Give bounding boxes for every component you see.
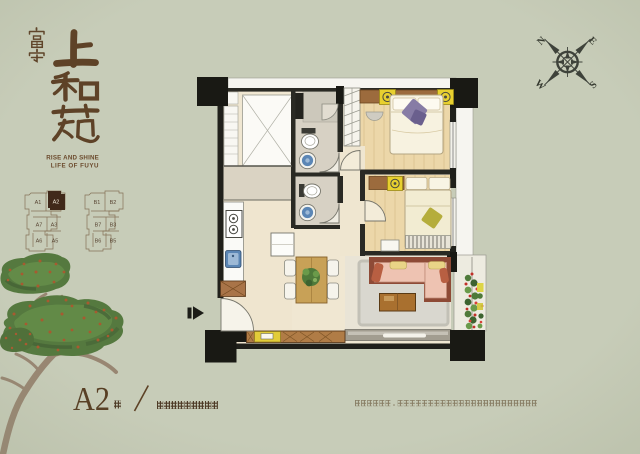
svg-text:A3: A3 — [51, 223, 58, 229]
svg-text:B5: B5 — [110, 239, 117, 245]
svg-text:A2: A2 — [73, 381, 110, 418]
svg-text:B7: B7 — [95, 223, 102, 229]
svg-text:B3: B3 — [110, 223, 117, 229]
svg-text:RISE AND SHINE: RISE AND SHINE — [46, 155, 99, 162]
svg-text:A1: A1 — [35, 200, 42, 206]
svg-text:A5: A5 — [52, 239, 59, 245]
svg-text:A2: A2 — [53, 200, 60, 206]
svg-text:LIFE OF FUYU: LIFE OF FUYU — [51, 163, 99, 170]
svg-text:B1: B1 — [94, 200, 101, 206]
svg-text:B2: B2 — [110, 200, 117, 206]
svg-text:A6: A6 — [36, 239, 43, 245]
svg-text:B6: B6 — [95, 239, 102, 245]
svg-text:A7: A7 — [36, 223, 43, 229]
